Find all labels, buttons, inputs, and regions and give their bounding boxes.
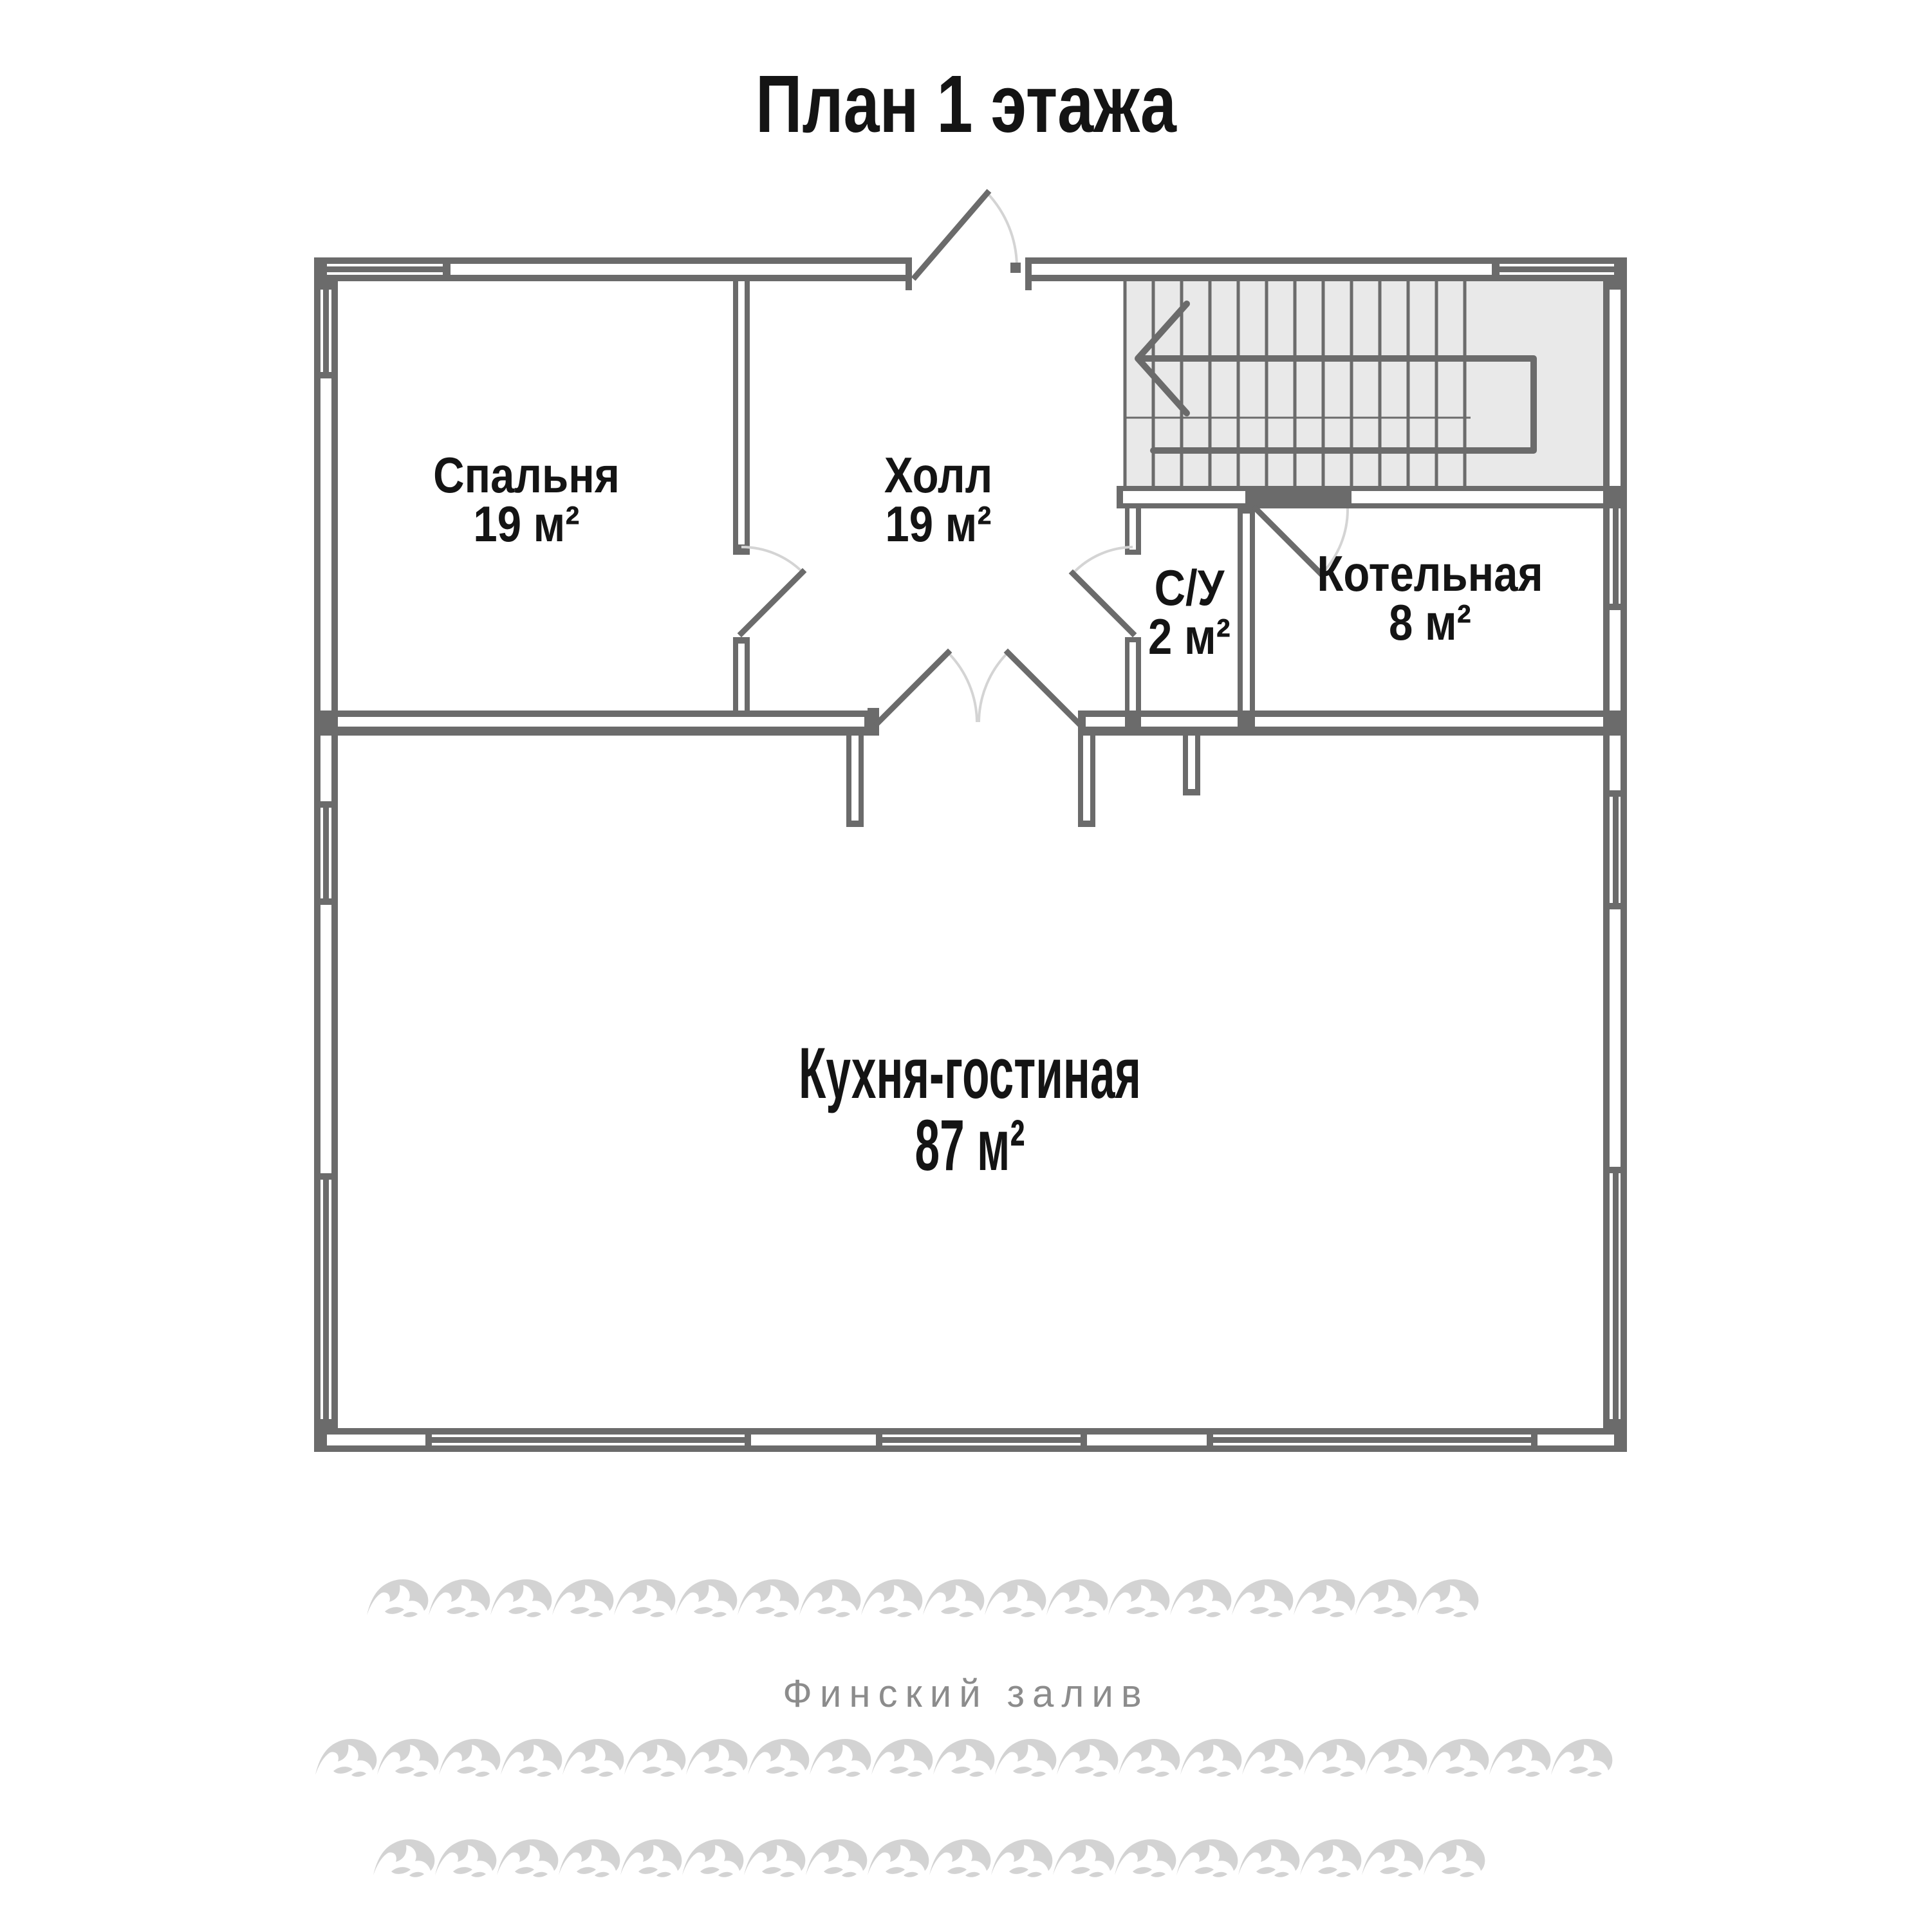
- window-left-bedroom: [323, 290, 329, 372]
- door-stop: [1010, 263, 1021, 273]
- wc-door: [1073, 547, 1133, 633]
- bedroom-door: [741, 547, 803, 633]
- window-bottom-2: [882, 1437, 1081, 1443]
- hall-kitchen-double-door: [877, 653, 1079, 723]
- room-name: Кухня-гостиная: [799, 1033, 1141, 1113]
- window-top-bedroom: [327, 266, 443, 272]
- staircase: [1125, 281, 1603, 486]
- room-name: Холл: [884, 447, 992, 503]
- window-right-boiler: [1613, 508, 1619, 604]
- room-area: 19 м²: [473, 496, 579, 552]
- room-area: 8 м²: [1389, 595, 1471, 651]
- wave-row-2: [315, 1739, 1612, 1777]
- floor-plan-canvas: План 1 этажа: [0, 0, 1932, 1932]
- room-area: 19 м²: [885, 496, 991, 552]
- window-bottom-1: [432, 1437, 745, 1443]
- floor-plan-page: План 1 этажа: [0, 0, 1932, 1932]
- room-name: Спальня: [433, 447, 620, 503]
- window-left-kitchen-1: [323, 808, 329, 898]
- entrance-door: [915, 193, 1021, 277]
- water-waves: [315, 1579, 1612, 1877]
- room-label-boiler: Котельная 8 м²: [1317, 546, 1543, 651]
- room-label-bedroom: Спальня 19 м²: [433, 447, 620, 552]
- room-name: С/У: [1155, 560, 1225, 616]
- page-title: План 1 этажа: [756, 59, 1177, 149]
- window-bottom-3: [1213, 1437, 1531, 1443]
- wave-row-3: [373, 1839, 1485, 1877]
- room-label-hall: Холл 19 м²: [884, 447, 992, 552]
- room-label-wc: С/У 2 м²: [1148, 560, 1231, 665]
- room-label-kitchen: Кухня-гостиная 87 м²: [799, 1033, 1141, 1185]
- room-name: Котельная: [1317, 546, 1543, 602]
- water-label: Финский залив: [783, 1672, 1149, 1715]
- window-right-kitchen-1: [1613, 797, 1619, 903]
- room-area: 87 м²: [915, 1105, 1025, 1185]
- wave-row-1: [367, 1579, 1478, 1617]
- page-title-text: План 1 этажа: [756, 59, 1177, 149]
- window-left-kitchen-2: [323, 1180, 329, 1419]
- room-area: 2 м²: [1148, 609, 1231, 665]
- window-right-kitchen-2: [1613, 1173, 1619, 1419]
- window-top-stairs: [1500, 266, 1614, 272]
